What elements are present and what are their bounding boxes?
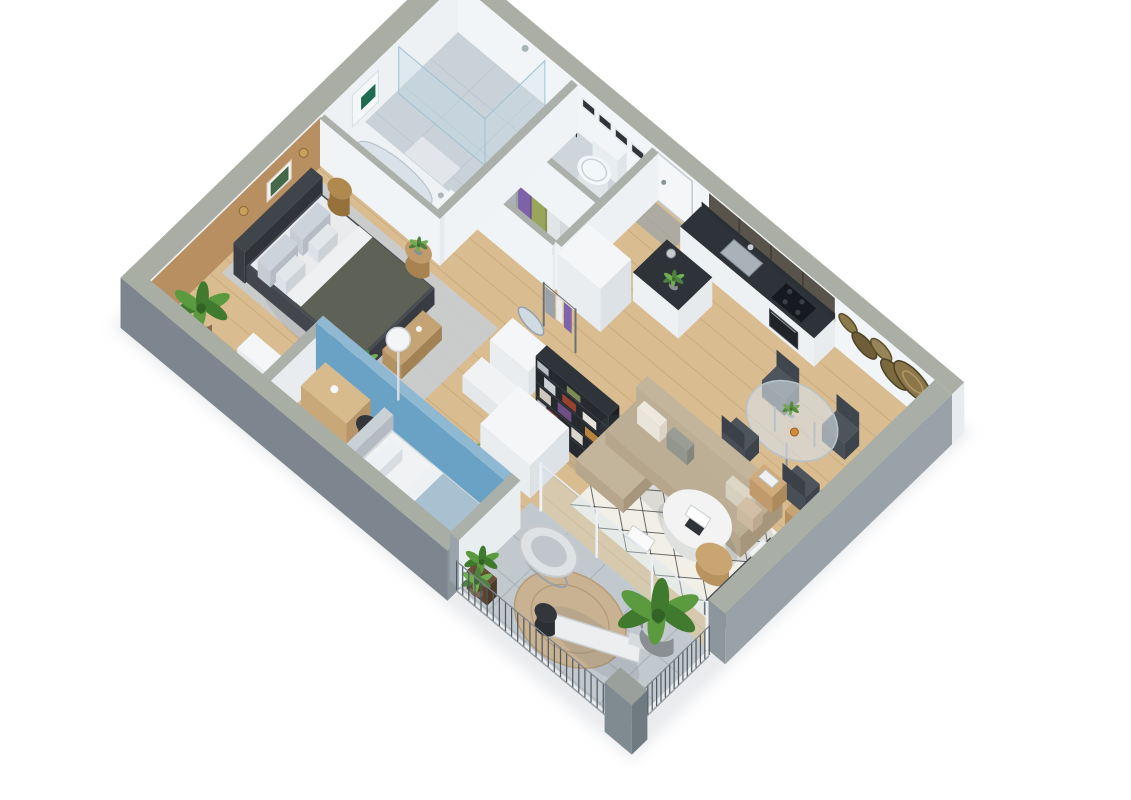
burner-icon [799, 299, 804, 304]
bench-deco-icon [416, 326, 422, 332]
cabinet-seam [770, 244, 772, 261]
cabinet-seam [738, 218, 740, 235]
kettle-icon [667, 249, 676, 258]
shower-head-icon [522, 45, 529, 52]
fruit-bowl-icon [790, 428, 798, 436]
burner-icon [795, 310, 800, 315]
wall-bedroom2-terrace-side-sw [450, 533, 459, 588]
cabinet-seam [802, 271, 804, 288]
wall-sconce-icon [299, 148, 308, 157]
door-handle-icon [661, 180, 666, 185]
wall-sconce-icon [239, 206, 248, 215]
wall-bathroom-south-side-se [440, 215, 445, 266]
kitchen-faucet-icon [748, 244, 754, 250]
screenshot-canvas: 3D isometric floor plan rendering of a o… [0, 0, 1131, 800]
apartment-3d-floor-plan-render: 3D isometric floor plan rendering of a o… [0, 0, 1131, 800]
desk-paper-icon [330, 385, 338, 393]
burner-icon [783, 299, 788, 304]
burner-icon [787, 289, 792, 294]
page: { "meta": { "title": "3D isometric floor… [0, 0, 1131, 800]
floor-lamp-shade [386, 327, 410, 351]
